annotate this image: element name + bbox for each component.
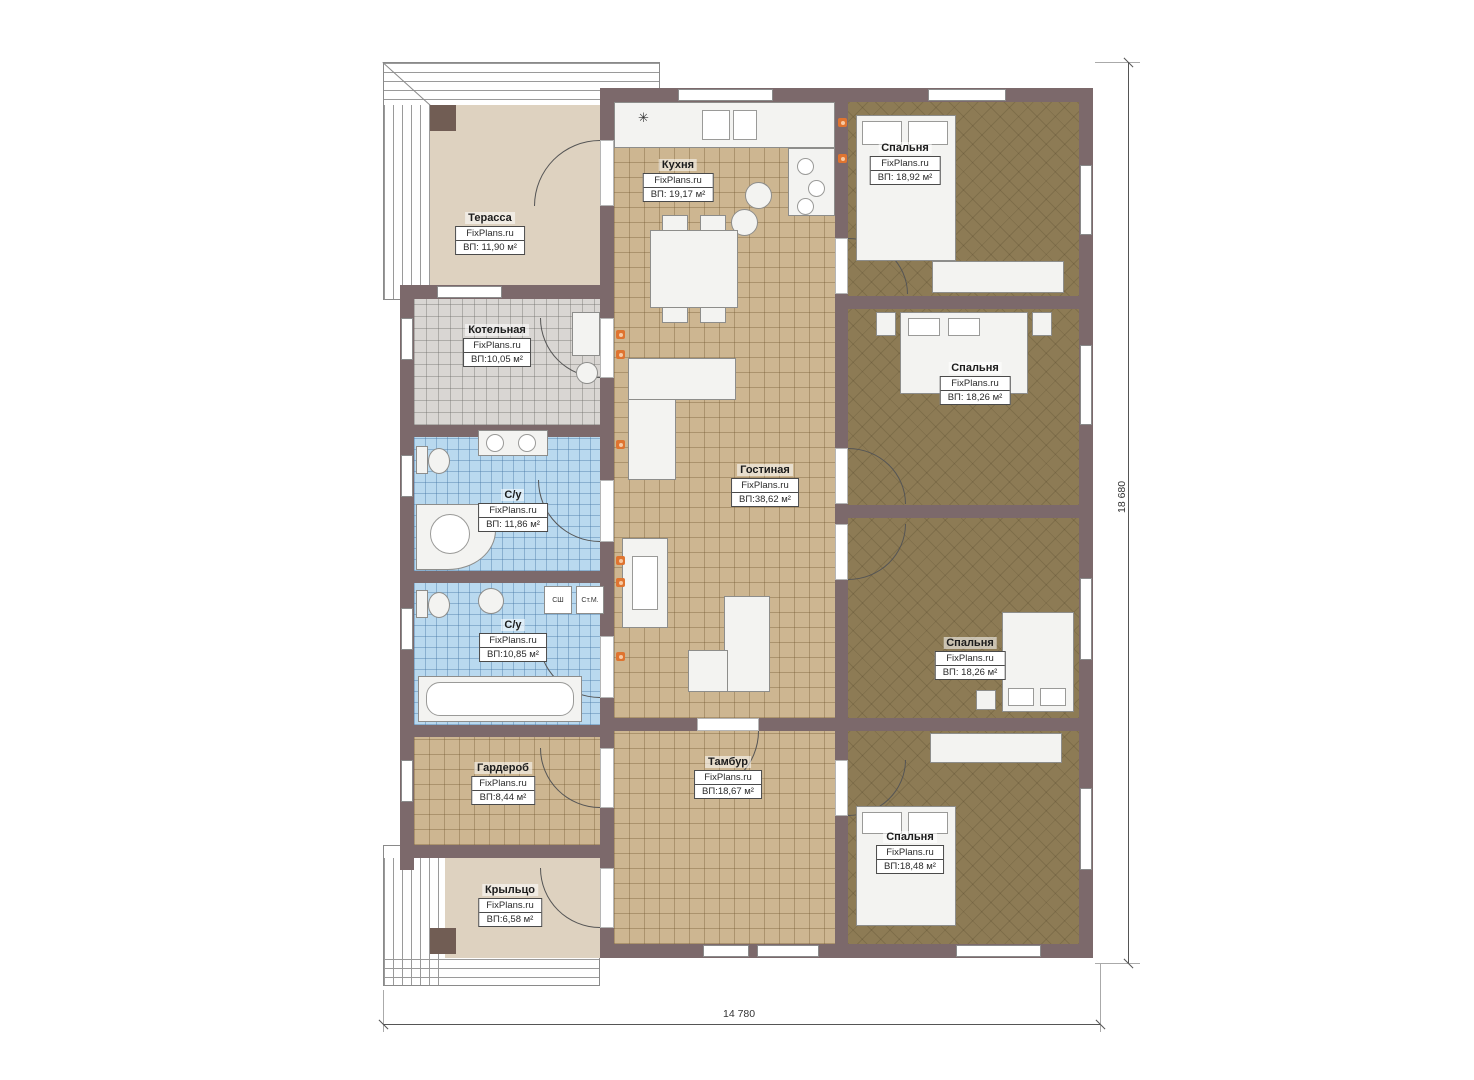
fireplace-insert [632,556,658,610]
window-bedroom4-bottom [956,945,1041,957]
outlet-icon [616,440,625,449]
outlet-icon [616,578,625,587]
window-bedroom2-right [1080,345,1092,425]
outlet-icon [838,118,847,127]
porch-steps-stripes-left [384,858,444,985]
room-name: Спальня [878,142,932,154]
window-bath2-left [401,608,413,650]
door-bath1 [600,480,614,542]
room-label-bath2: С/у FixPlans.ru ВП:10,85 м² [479,615,547,662]
window-bedroom1-right [1080,165,1092,235]
terrace-roof-stripes-left [384,105,430,299]
room-label-terrace: Терасса FixPlans.ru ВП: 11,90 м² [455,208,525,255]
room-area: ВП:38,62 м² [732,492,798,506]
wall-bed3-bed4 [848,718,1079,731]
brand-watermark: FixPlans.ru [456,227,524,240]
dimension-line-vertical [1128,62,1129,963]
window-bath1-left [401,455,413,497]
wall-center-east [835,88,848,958]
room-area: ВП: 18,26 м² [936,665,1005,679]
sink-bath1-b [518,434,536,452]
room-name: С/у [501,619,524,631]
dining-table [650,230,738,308]
room-name: Спальня [948,362,1002,374]
dining-chair-4 [700,307,726,323]
outlet-icon [838,154,847,163]
window-bedroom1-top [928,89,1006,101]
window-kitchen-top [678,89,773,101]
window-tambour-bottom-2 [757,945,819,957]
stove-burner-2 [808,180,825,197]
wall-bed1-bed2 [848,296,1079,309]
room-area: ВП:18,67 м² [695,784,761,798]
kitchen-sink-basin2 [733,110,757,140]
room-label-kitchen: Кухня FixPlans.ru ВП: 19,17 м² [643,155,714,202]
floor-plan-canvas: ✳ СШ Ст.М. [0,0,1474,1080]
brand-watermark: FixPlans.ru [479,899,541,912]
outlet-icon [616,330,625,339]
door-bedroom4 [835,760,848,816]
room-name: С/у [501,489,524,501]
washer-label: Ст.М. [581,597,598,604]
room-label-bedroom4: Спальня FixPlans.ru ВП:18,48 м² [876,827,944,874]
dining-chair-2 [700,215,726,231]
room-area: ВП: 19,17 м² [644,187,713,201]
room-area: ВП: 18,92 м² [871,170,940,184]
stove-burner-3 [797,198,814,215]
outlet-icon [616,350,625,359]
room-area: ВП: 11,90 м² [456,240,524,254]
dimension-width: 14 780 [723,1008,755,1020]
dryer-label: СШ [552,597,563,604]
room-label-bedroom3: Спальня FixPlans.ru ВП: 18,26 м² [935,633,1006,680]
bathtub-basin-bath2 [426,682,574,716]
toilet-tank-bath1 [416,446,428,474]
wall-leftwing-top [400,285,614,299]
sofa-left-horizontal [628,358,736,400]
room-label-boiler: Котельная FixPlans.ru ВП:10,05 м² [463,320,531,367]
window-tambour-bottom-1 [703,945,749,957]
terrace-post [430,105,456,131]
dimension-line-horizontal [383,1024,1100,1025]
nightstand-bedroom2-a [876,312,896,336]
door-tambour [697,718,759,731]
dining-chair-1 [662,215,688,231]
nightstand-bedroom3 [976,690,996,710]
room-label-bath1: С/у FixPlans.ru ВП: 11,86 м² [478,485,548,532]
door-bedroom1 [835,238,848,294]
room-name: Терасса [465,212,515,224]
door-boiler [600,318,614,378]
room-label-living: Гостиная FixPlans.ru ВП:38,62 м² [731,460,799,507]
brand-watermark: FixPlans.ru [472,777,534,790]
room-label-wardrobe: Гардероб FixPlans.ru ВП:8,44 м² [471,758,535,805]
wall-bath2-wardrobe [414,725,600,737]
brand-watermark: FixPlans.ru [479,504,547,517]
pillow-bedroom2-b [948,318,980,336]
extension-line [1095,62,1140,63]
kitchen-sink-basin1 [702,110,730,140]
brand-watermark: FixPlans.ru [644,174,713,187]
sofa-right-vertical [724,596,770,692]
toilet-bowl-bath1 [428,448,450,474]
pillow-bedroom2-a [908,318,940,336]
door-terrace [600,140,614,206]
room-label-bedroom2: Спальня FixPlans.ru ВП: 18,26 м² [940,358,1011,405]
wardrobe-bedroom4 [930,733,1062,763]
dining-chair-3 [662,307,688,323]
room-name: Спальня [883,831,937,843]
room-name: Спальня [943,637,997,649]
door-bedroom3 [835,524,848,580]
boiler-unit [572,312,600,356]
brand-watermark: FixPlans.ru [941,377,1010,390]
room-label-tambour: Тамбур FixPlans.ru ВП:18,67 м² [694,752,762,799]
room-name: Тамбур [705,756,751,768]
toilet-bowl-bath2 [428,592,450,618]
brand-watermark: FixPlans.ru [871,157,940,170]
window-boiler-top [437,286,502,298]
room-name: Крыльцо [482,884,538,896]
wall-bed2-bed3 [848,505,1079,518]
sofa-right-horizontal [688,650,728,692]
extension-line [1100,963,1101,1032]
room-name: Котельная [465,324,529,336]
room-name: Гардероб [474,762,532,774]
room-name: Кухня [659,159,697,171]
boiler-tank [576,362,598,384]
sink-bath1-a [486,434,504,452]
brand-watermark: FixPlans.ru [877,846,943,859]
door-porch [600,868,614,928]
stove-burner-1 [797,158,814,175]
toilet-tank-bath2 [416,590,428,618]
pillow-bedroom3-a [1008,688,1034,706]
room-name: Гостиная [737,464,793,476]
brand-watermark: FixPlans.ru [936,652,1005,665]
vent-icon: ✳ [638,110,649,126]
kitchen-stool-1 [745,182,772,209]
pillow-bedroom3-b [1040,688,1066,706]
room-area: ВП:10,05 м² [464,352,530,366]
dryer-box: СШ [544,586,572,614]
brand-watermark: FixPlans.ru [464,339,530,352]
nightstand-bedroom2-b [1032,312,1052,336]
door-bath2 [600,636,614,698]
brand-watermark: FixPlans.ru [695,771,761,784]
porch-post [430,928,456,954]
window-bedroom3-right [1080,578,1092,660]
brand-watermark: FixPlans.ru [732,479,798,492]
outlet-icon [616,652,625,661]
window-bedroom4-right [1080,788,1092,870]
window-wardrobe-left [401,760,413,802]
room-area: ВП:18,48 м² [877,859,943,873]
room-area: ВП: 11,86 м² [479,517,547,531]
outlet-icon [616,556,625,565]
wardrobe-bedroom1 [932,261,1064,293]
wall-bath1-bath2 [414,571,600,583]
window-boiler-left [401,318,413,360]
corner-bathtub-basin [430,514,470,554]
room-area: ВП:10,85 м² [480,647,546,661]
room-area: ВП: 18,26 м² [941,390,1010,404]
room-label-bedroom1: Спальня FixPlans.ru ВП: 18,92 м² [870,138,941,185]
extension-line [1095,963,1140,964]
washer-box: Ст.М. [576,586,604,614]
brand-watermark: FixPlans.ru [480,634,546,647]
sink-bath2 [478,588,504,614]
room-area: ВП:8,44 м² [472,790,534,804]
door-bedroom2 [835,448,848,504]
room-label-porch: Крыльцо FixPlans.ru ВП:6,58 м² [478,880,542,927]
door-wardrobe [600,748,614,808]
wall-leftwing-bottom [400,845,614,858]
dimension-height: 18 680 [1116,481,1128,513]
room-area: ВП:6,58 м² [479,912,541,926]
